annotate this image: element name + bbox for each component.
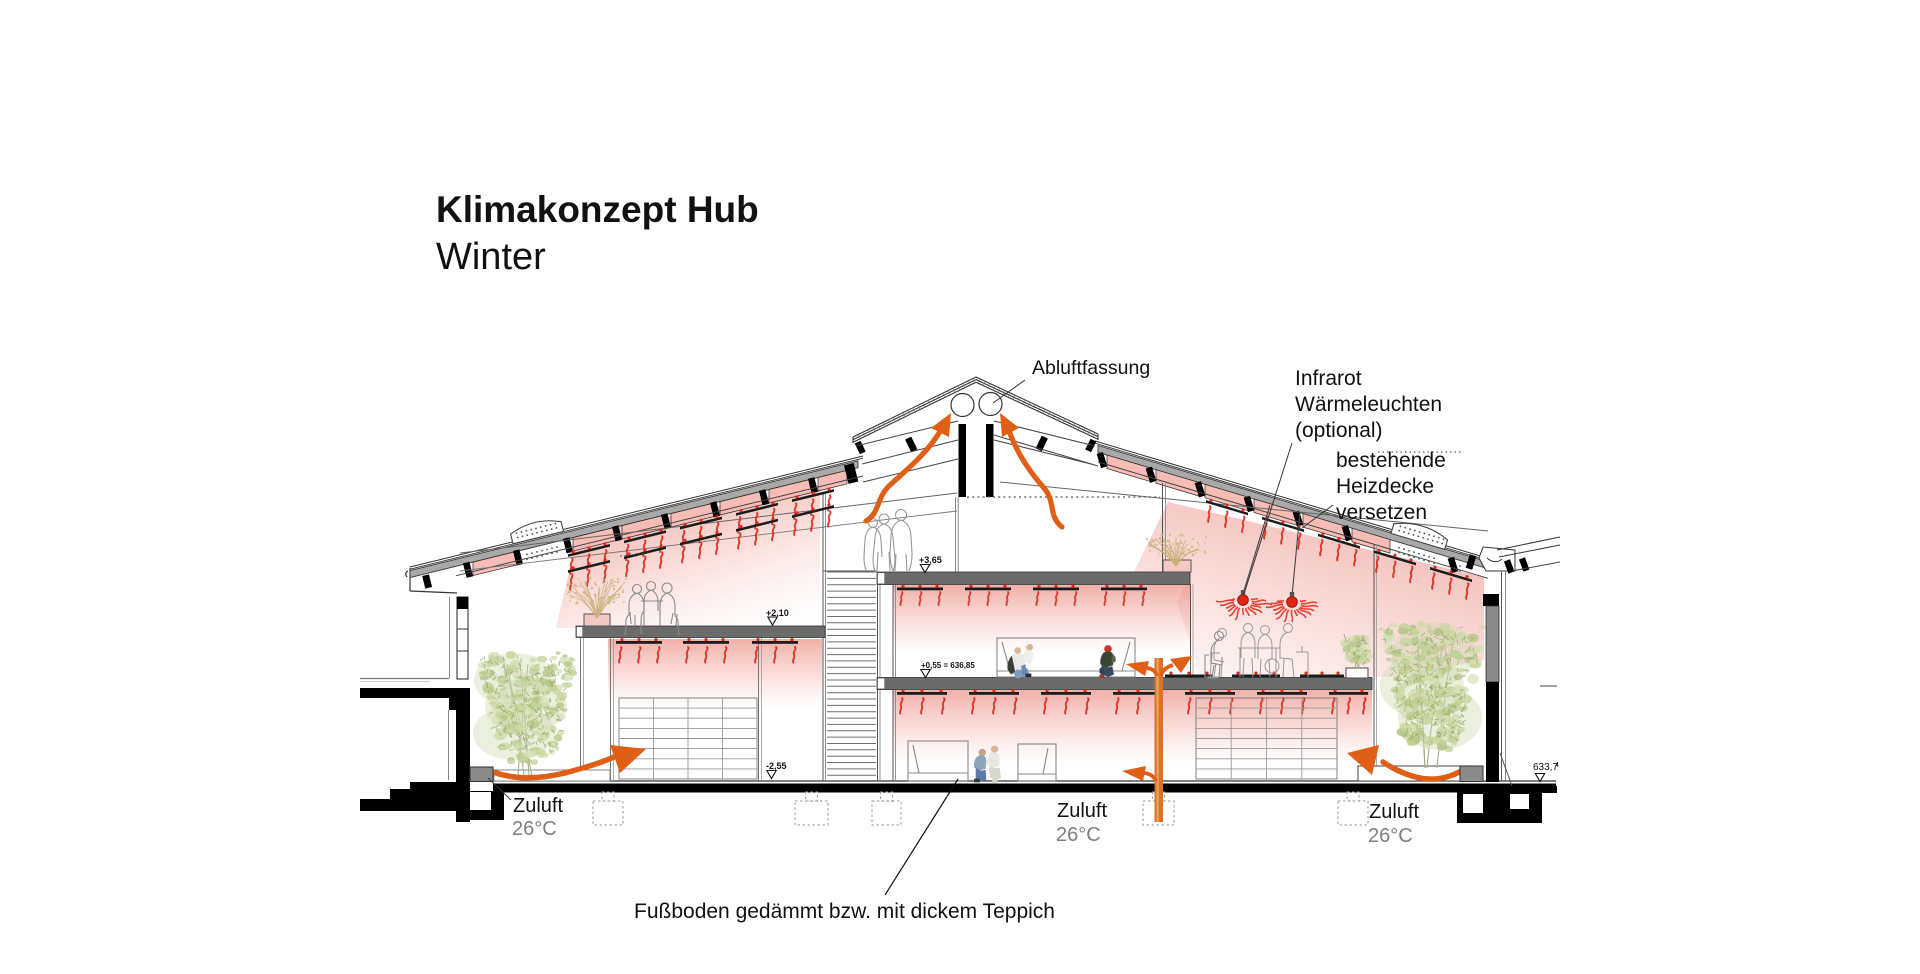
svg-text:bestehende: bestehende (1336, 449, 1446, 472)
svg-text:+0,55 = 636,85: +0,55 = 636,85 (921, 661, 975, 670)
svg-text:Abluftfassung: Abluftfassung (1032, 357, 1150, 379)
svg-text:Zuluft: Zuluft (513, 795, 563, 817)
svg-text:26°C: 26°C (512, 818, 557, 840)
svg-text:26°C: 26°C (1056, 824, 1101, 846)
svg-text:(optional): (optional) (1295, 419, 1383, 442)
svg-text:Heizdecke: Heizdecke (1336, 475, 1434, 498)
svg-text:Wärmeleuchten: Wärmeleuchten (1295, 393, 1442, 416)
svg-text:Zuluft: Zuluft (1369, 801, 1419, 823)
svg-text:Winter: Winter (436, 236, 546, 278)
svg-text:Zuluft: Zuluft (1057, 800, 1107, 822)
svg-text:4: 4 (1555, 762, 1559, 769)
svg-text:Fußboden gedämmt bzw. mit dick: Fußboden gedämmt bzw. mit dickem Teppich (634, 900, 1055, 923)
svg-text:+3,65: +3,65 (919, 555, 942, 565)
svg-text:26°C: 26°C (1368, 825, 1413, 847)
svg-text:Klimakonzept Hub: Klimakonzept Hub (436, 189, 759, 230)
svg-text:versetzen: versetzen (1336, 501, 1427, 524)
svg-text:Infrarot: Infrarot (1295, 367, 1362, 390)
svg-text:-2,55: -2,55 (766, 761, 787, 771)
